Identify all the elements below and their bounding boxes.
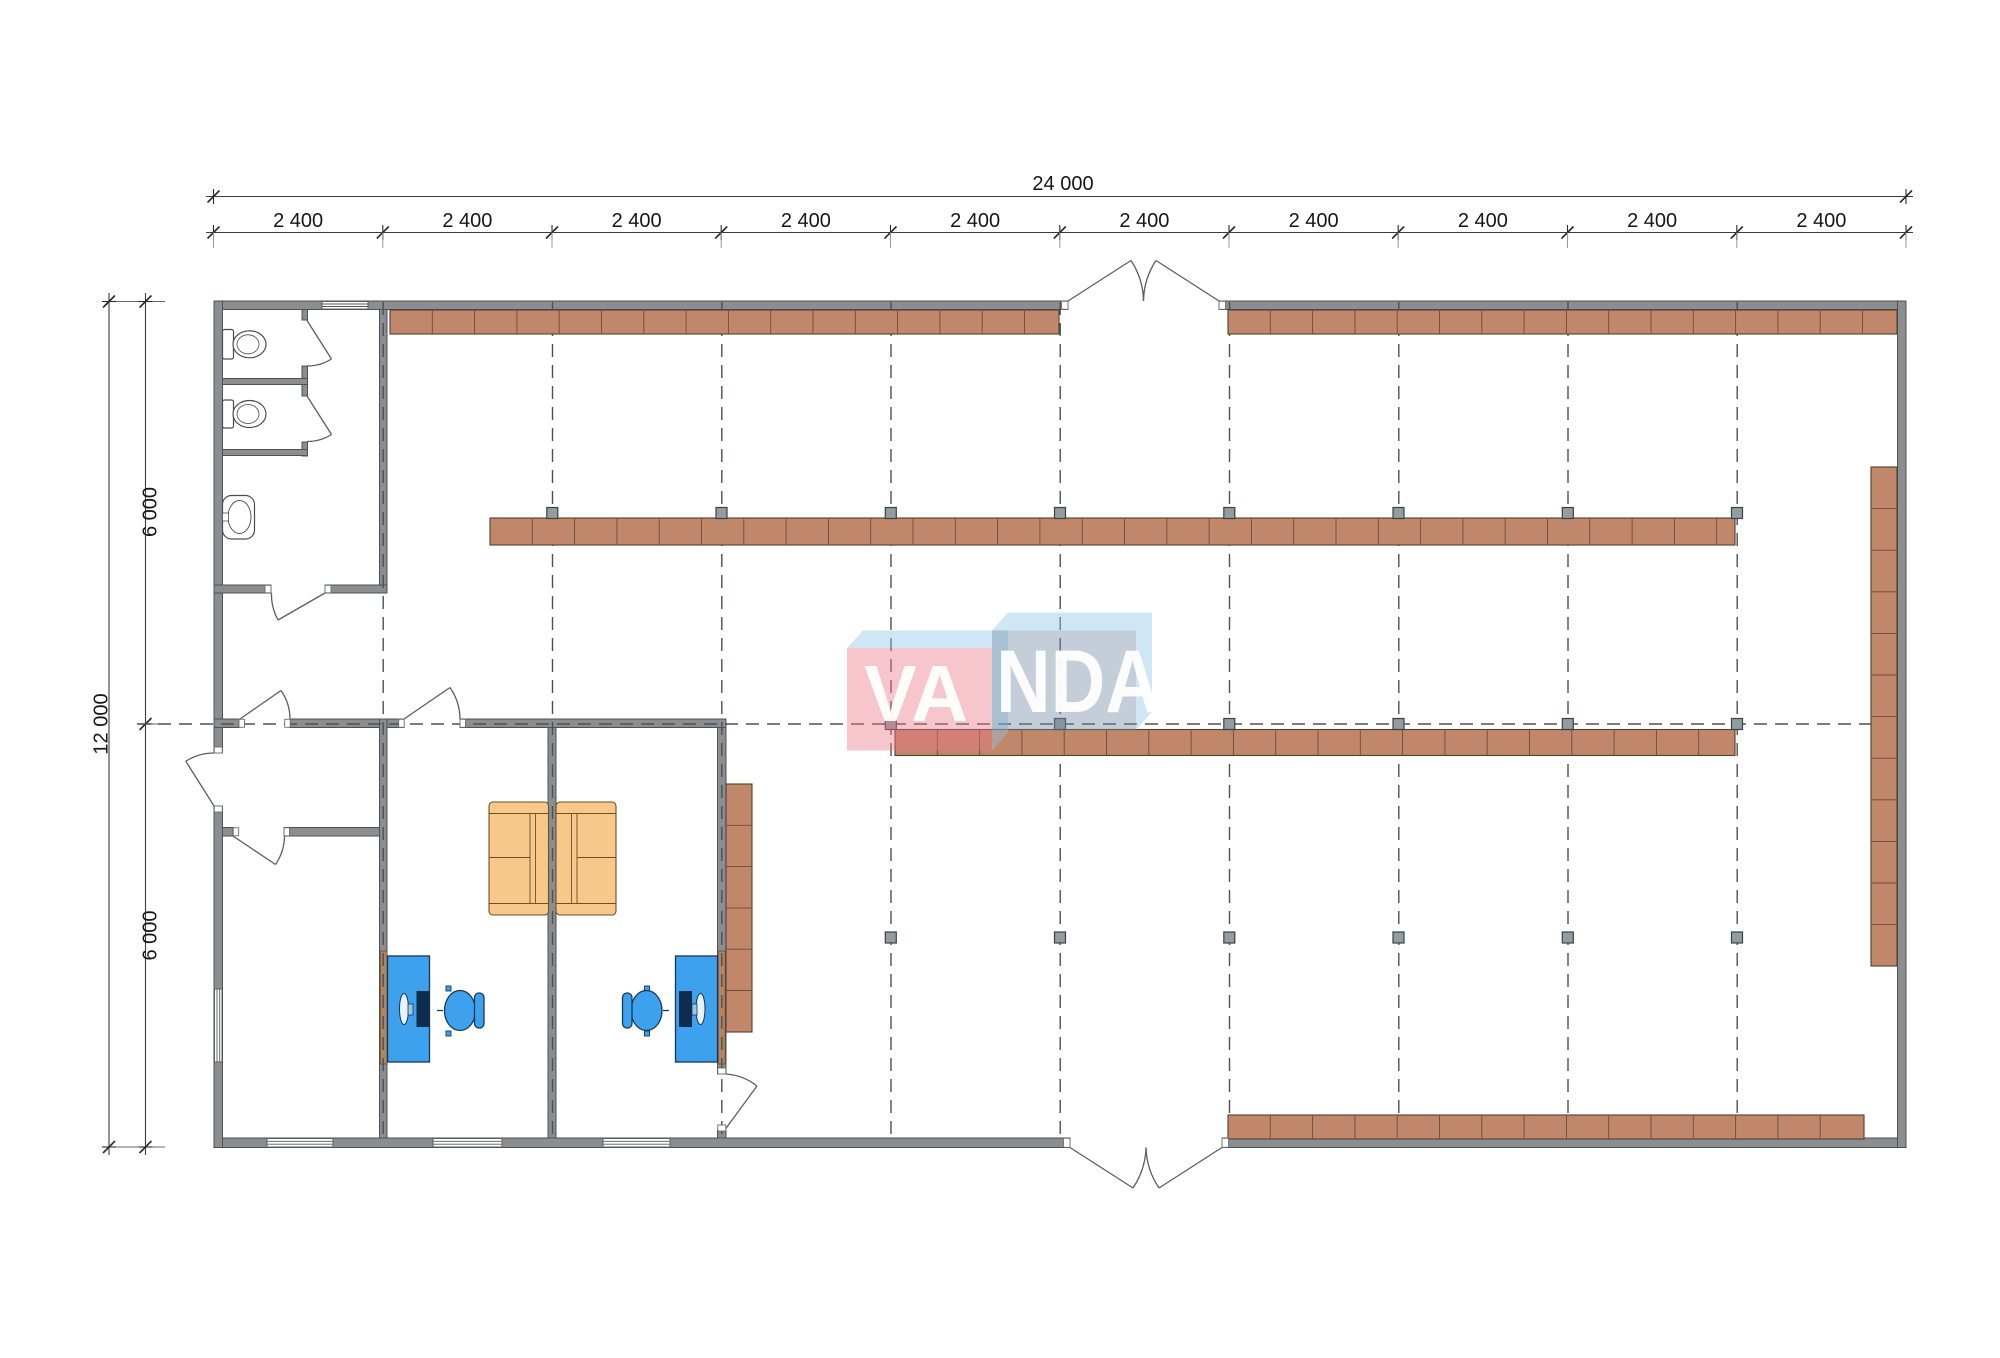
svg-text:2 400: 2 400 [1627, 210, 1677, 232]
svg-text:2 400: 2 400 [442, 210, 492, 232]
svg-text:2 400: 2 400 [1796, 210, 1846, 232]
svg-text:2 400: 2 400 [781, 210, 831, 232]
svg-text:2 400: 2 400 [950, 210, 1000, 232]
svg-text:NDA: NDA [996, 631, 1160, 731]
svg-text:12 000: 12 000 [91, 693, 113, 754]
svg-text:2 400: 2 400 [1119, 210, 1169, 232]
svg-text:6 000: 6 000 [140, 487, 162, 537]
svg-text:6 000: 6 000 [140, 910, 162, 960]
svg-text:2 400: 2 400 [273, 210, 323, 232]
svg-text:VA: VA [864, 649, 968, 738]
svg-text:24 000: 24 000 [1032, 173, 1093, 195]
svg-text:2 400: 2 400 [612, 210, 662, 232]
svg-text:2 400: 2 400 [1289, 210, 1339, 232]
svg-text:2 400: 2 400 [1458, 210, 1508, 232]
